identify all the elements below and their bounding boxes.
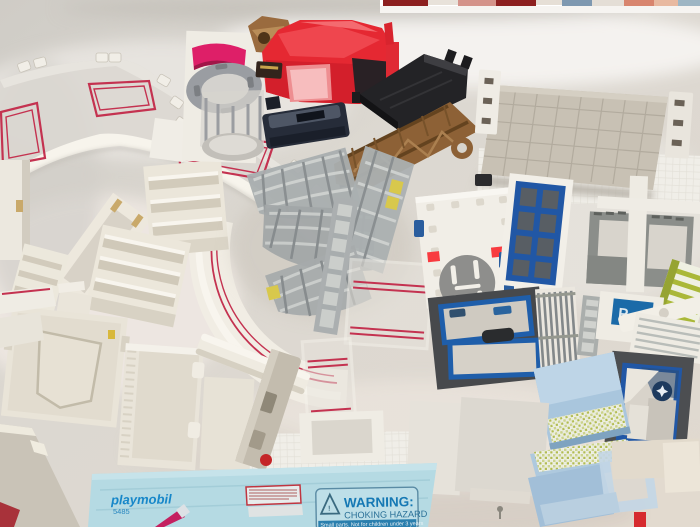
svg-text:WARNING:: WARNING: <box>344 494 414 510</box>
svg-text:CHOKING HAZARD: CHOKING HAZARD <box>344 509 428 520</box>
svg-text:playmobil: playmobil <box>110 491 172 507</box>
svg-text:Small parts. Not for children: Small parts. Not for children under 3 ye… <box>320 521 423 527</box>
svg-text:5485: 5485 <box>113 507 130 516</box>
svg-text:!: ! <box>328 506 330 513</box>
